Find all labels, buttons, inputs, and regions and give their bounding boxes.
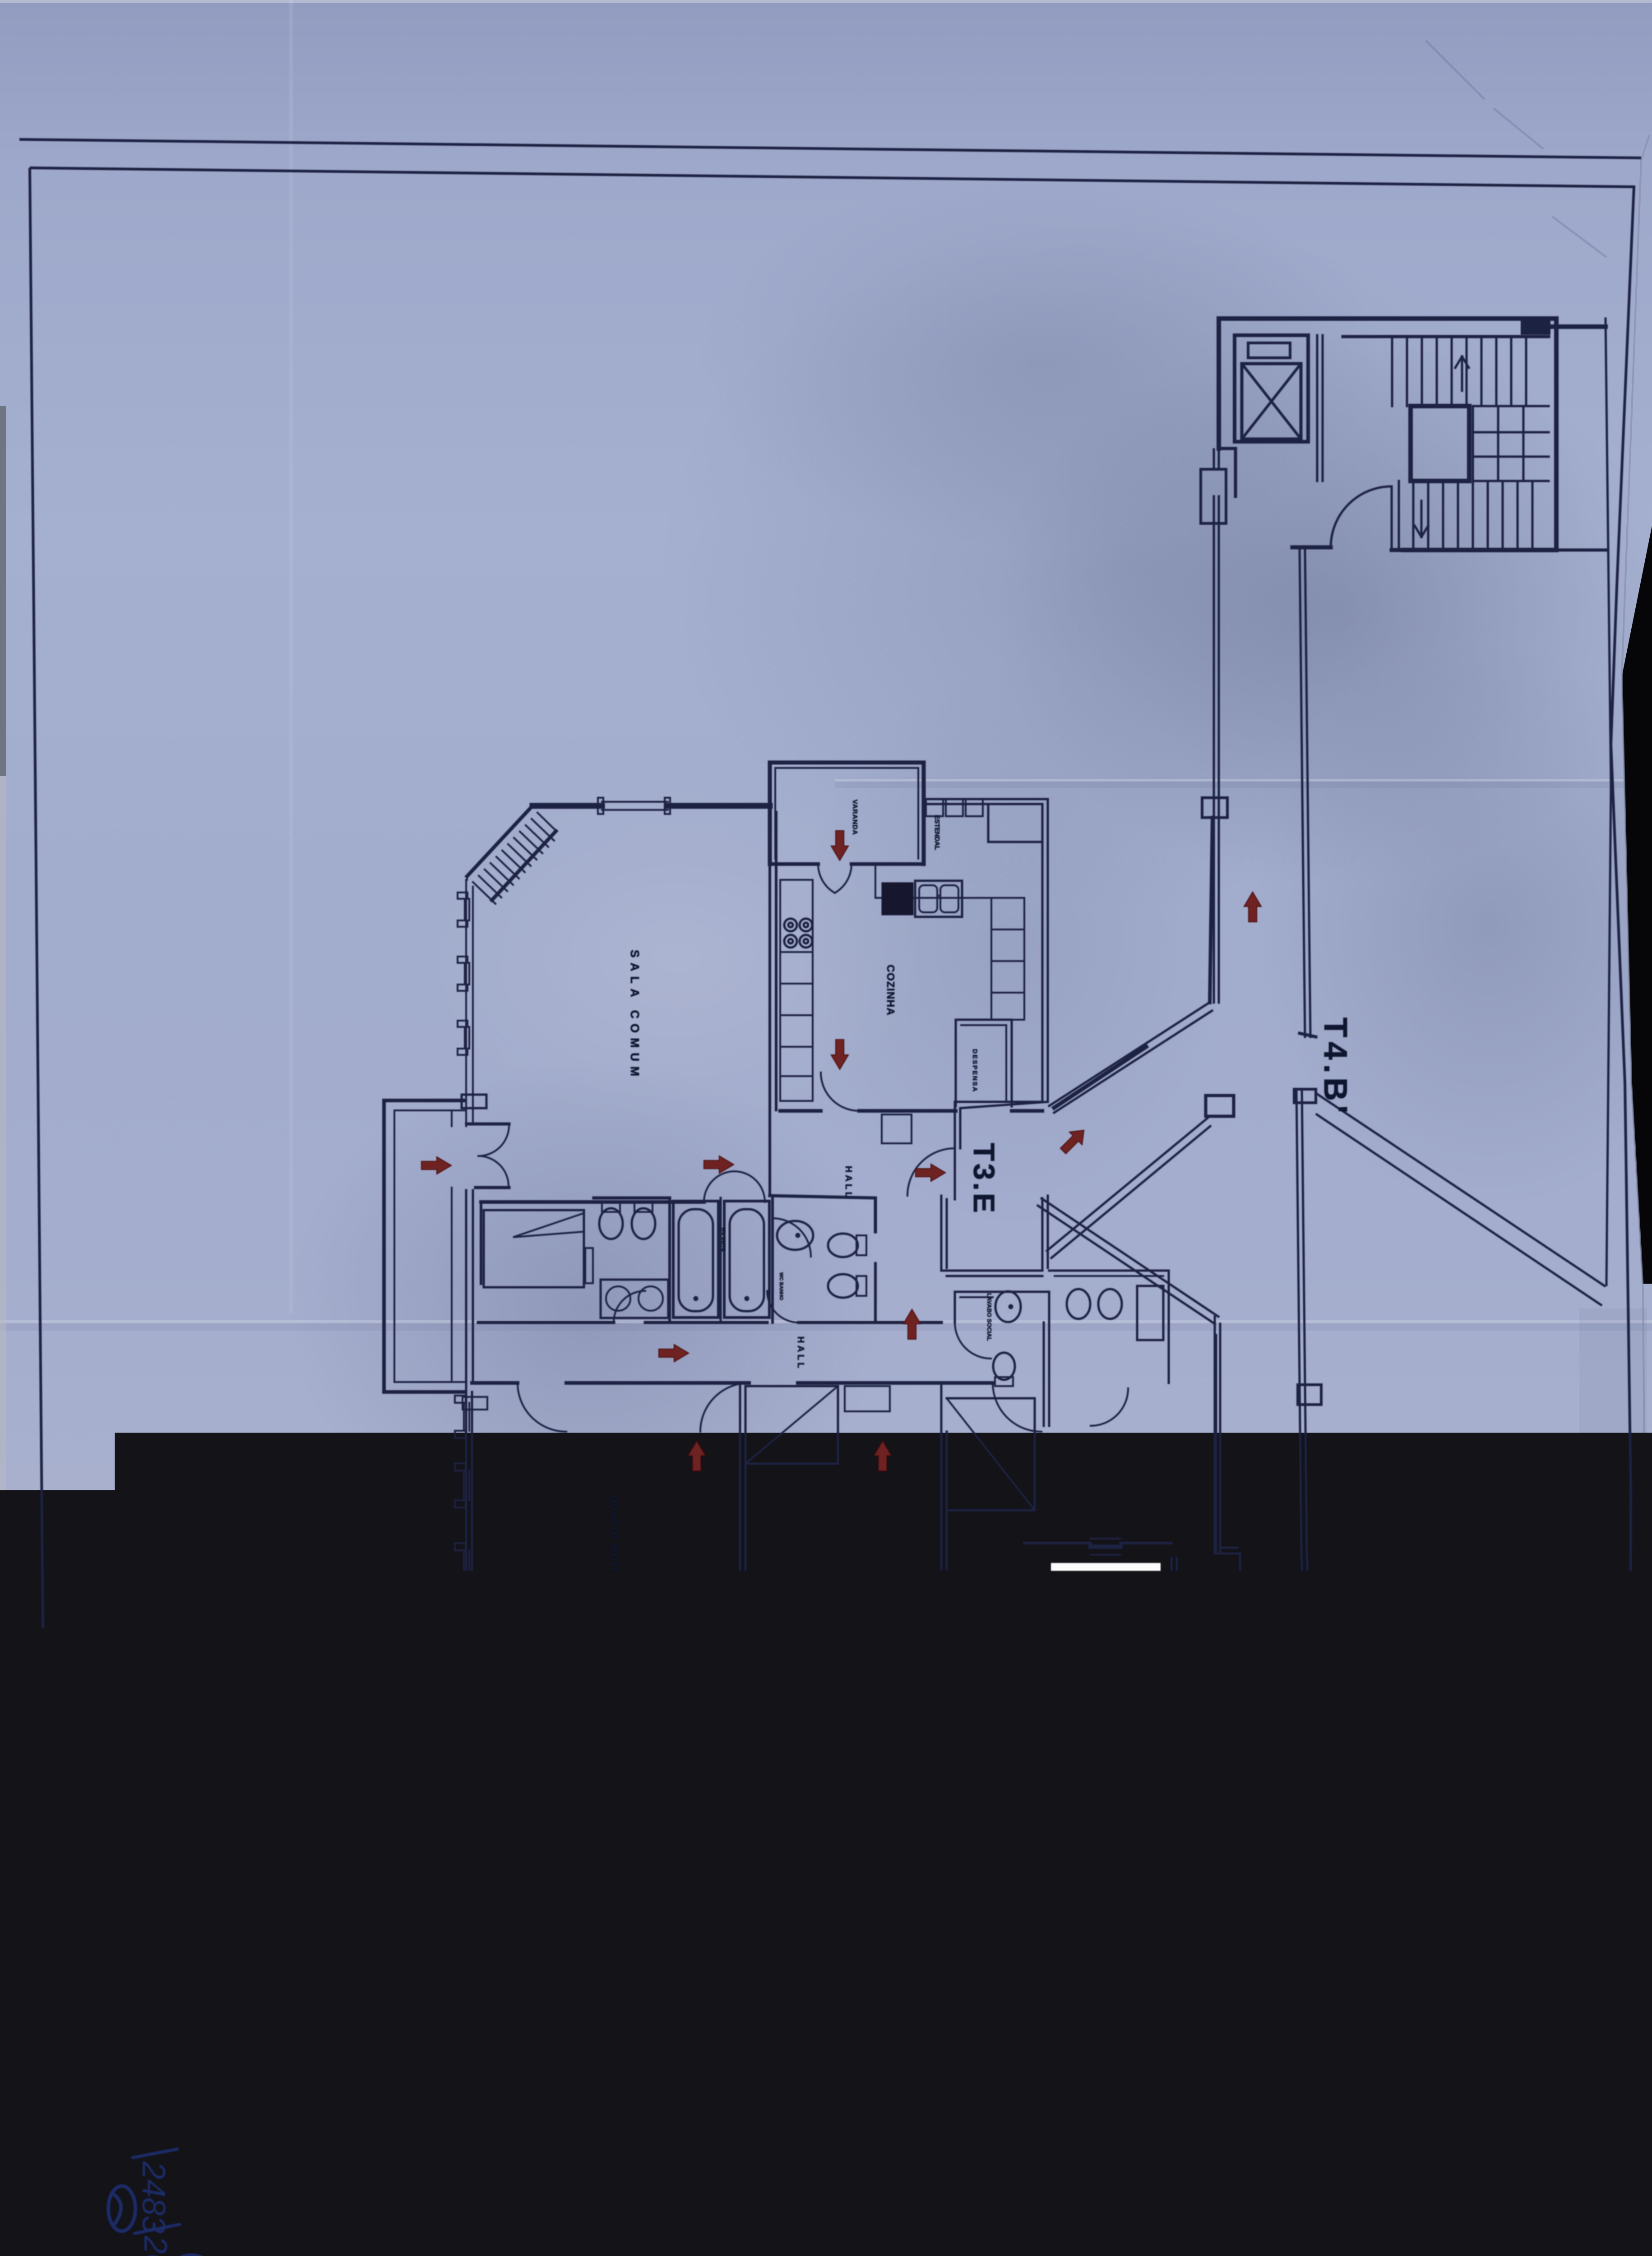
svg-text:Quinta da Beloura II Lote EA: Quinta da Beloura II Lote EA16 bbox=[132, 1964, 147, 2185]
svg-text:PLANTA SIMPLIFICADA DO ACESSO: PLANTA SIMPLIFICADA DO ACESSO AO FOGO bbox=[199, 1951, 222, 2211]
svg-text:HALL: HALL bbox=[843, 1166, 853, 1197]
svg-text:2483: 2483 bbox=[135, 2161, 171, 2233]
svg-text:Está conforme o original: Está conforme o original bbox=[1221, 2054, 1236, 2256]
svg-text:08: 08 bbox=[137, 2118, 171, 2152]
svg-text:QUARTO SUITE: QUARTO SUITE bbox=[944, 1587, 953, 1673]
svg-text:DESPENSA: DESPENSA bbox=[972, 1049, 979, 1091]
svg-text:DIGITALIZADO: DIGITALIZADO bbox=[1545, 2111, 1571, 2256]
svg-text:ABRIL 2008: ABRIL 2008 bbox=[52, 1932, 71, 2028]
svg-text:CÂMARA MUNICIPAL: CÂMARA MUNICIPAL bbox=[1262, 2110, 1328, 2219]
svg-text:WC SUITE: WC SUITE bbox=[721, 1227, 726, 1252]
svg-text:T3.E: T3.E bbox=[967, 1143, 1001, 1213]
svg-text:2001: 2001 bbox=[137, 2235, 173, 2256]
svg-text:Planta do piso 2 - Bloco 1 - T: Planta do piso 2 - Bloco 1 - T3 E bbox=[174, 1951, 190, 2107]
svg-text:HALL: HALL bbox=[796, 1336, 805, 1368]
svg-text:COZINHA: COZINHA bbox=[885, 965, 897, 1015]
svg-text:WC BANHO: WC BANHO bbox=[778, 1272, 784, 1300]
svg-text:SALA COMUM: SALA COMUM bbox=[628, 950, 642, 1076]
svg-text:CONFERE: CONFERE bbox=[1246, 2060, 1270, 2166]
svg-text:SAÍDA DE EMERGÊNCIA EM CASO DE: SAÍDA DE EMERGÊNCIA EM CASO DE INCÊNDIO bbox=[586, 1751, 597, 2030]
svg-text:1:100: 1:100 bbox=[54, 2158, 68, 2190]
svg-text:SOCIEDADE DE CONSTRUÇÕES: SOCIEDADE DE CONSTRUÇÕES bbox=[111, 1768, 119, 1874]
svg-text:QUARTO SUITE: QUARTO SUITE bbox=[609, 1496, 618, 1573]
svg-text:VARANDA: VARANDA bbox=[851, 800, 859, 835]
svg-text:T4.C': T4.C' bbox=[1254, 1690, 1290, 1792]
svg-text:LOCAL: LOCAL bbox=[135, 1931, 143, 1956]
svg-text:Setor Anco & Real Marteo, Lda: Setor Anco & Real Marteo, Lda bbox=[122, 1768, 130, 1855]
svg-text:LAVABO SOCIAL: LAVABO SOCIAL bbox=[986, 1293, 993, 1341]
svg-text:T4.B': T4.B' bbox=[1317, 1017, 1353, 1113]
svg-text:ESTENDAL: ESTENDAL bbox=[933, 815, 941, 850]
svg-text:ESCALA:: ESCALA: bbox=[76, 2066, 83, 2099]
svg-text:REQUERENTE:: REQUERENTE: bbox=[206, 1762, 218, 1841]
